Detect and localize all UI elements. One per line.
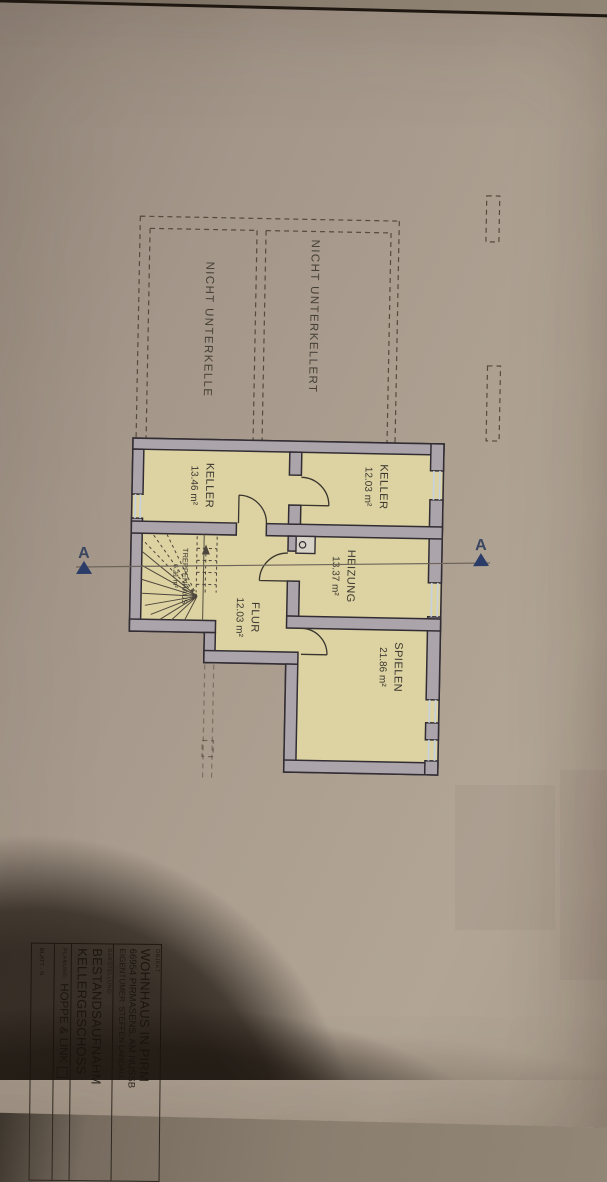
wall-right-1: [431, 444, 445, 471]
room-name-keller-13: KELLER: [203, 463, 216, 508]
chimney-fixture: [296, 536, 315, 553]
wall-right-4: [425, 761, 438, 775]
wall-mid-left: [131, 521, 236, 535]
floor-plan-drawing: NICHT UNTERKELLERT NICHT UNTERKELLE KELL…: [0, 0, 607, 1080]
wall-right-mullion: [425, 723, 438, 740]
planung-firm: HOPPE & LINK: [57, 983, 70, 1063]
room-area-treppenhaus: 6.21 m²: [171, 564, 178, 589]
blatt-label: BLATT - N: [38, 948, 44, 976]
dashed-pier-upper: [486, 196, 500, 242]
wall-spielen-bottom: [284, 760, 438, 775]
room-area-keller-13: 13.46 m²: [188, 465, 200, 505]
planung-label: PLANUNG:: [60, 948, 67, 979]
wall-left-upper: [132, 449, 144, 494]
title-block-blatt-section: BLATT - N: [29, 943, 55, 1181]
wall-heizung-spielen: [286, 616, 440, 631]
darstellung-line-2: KELLERGESCHOSS: [73, 948, 90, 1176]
title-block-objekt-section: OBJEKT WOHNHAUS IN PIRM 66954 PIRMASENS,…: [112, 943, 162, 1181]
room-area-spielen: 21.86 m²: [376, 647, 388, 687]
room-name-flur: FLUR: [248, 602, 261, 633]
darstellung-line-1: BESTANDSAUFNAHM: [88, 948, 105, 1176]
room-name-spielen: SPIELEN: [391, 642, 404, 692]
dashed-pier-lower: [486, 366, 500, 441]
dashed-lines-below-plan: [203, 664, 214, 778]
room-area-heizung: 13.37 m²: [329, 556, 341, 596]
room-name-keller-12: KELLER: [377, 464, 390, 509]
room-name-heizung: HEIZUNG: [344, 550, 357, 603]
wall-heizung-b: [287, 581, 300, 616]
wall-left-lower: [129, 518, 142, 631]
section-marker-triangle-right: [473, 553, 489, 566]
label-nicht-unterkellert: NICHT UNTERKELLERT: [306, 239, 321, 393]
room-name-treppenhaus: TREPPENHAUS: [180, 548, 190, 604]
section-marker-letter-left: A: [78, 545, 90, 562]
wall-keller-divider-b: [288, 505, 300, 524]
title-block: OBJEKT WOHNHAUS IN PIRM 66954 PIRMASENS,…: [29, 943, 162, 1182]
planung-logo-box: [57, 1067, 68, 1078]
wall-right-2: [428, 500, 443, 583]
wall-keller-divider-a: [289, 452, 301, 475]
wall-flur-bottom: [204, 650, 298, 664]
room-area-keller-12: 12.03 m²: [362, 467, 374, 507]
title-block-planung-section: PLANUNG: HOPPE & LINK: [53, 943, 72, 1181]
wall-spielen-left: [284, 664, 298, 772]
room-area-flur: 12.03 m²: [233, 597, 245, 637]
label-nicht-unterkelle: NICHT UNTERKELLE: [201, 261, 216, 397]
title-block-darstellung-section: DARSTELLUNG: BESTANDSAUFNAHM KELLERGESCH…: [70, 943, 114, 1181]
photo-of-floorplan: { "plan": { "section_marker": "A", "room…: [0, 0, 607, 1080]
wall-stair-bottom: [129, 619, 215, 633]
objekt-line-1: WOHNHAUS IN PIRM: [136, 949, 153, 1177]
section-marker-letter-right: A: [475, 537, 487, 554]
